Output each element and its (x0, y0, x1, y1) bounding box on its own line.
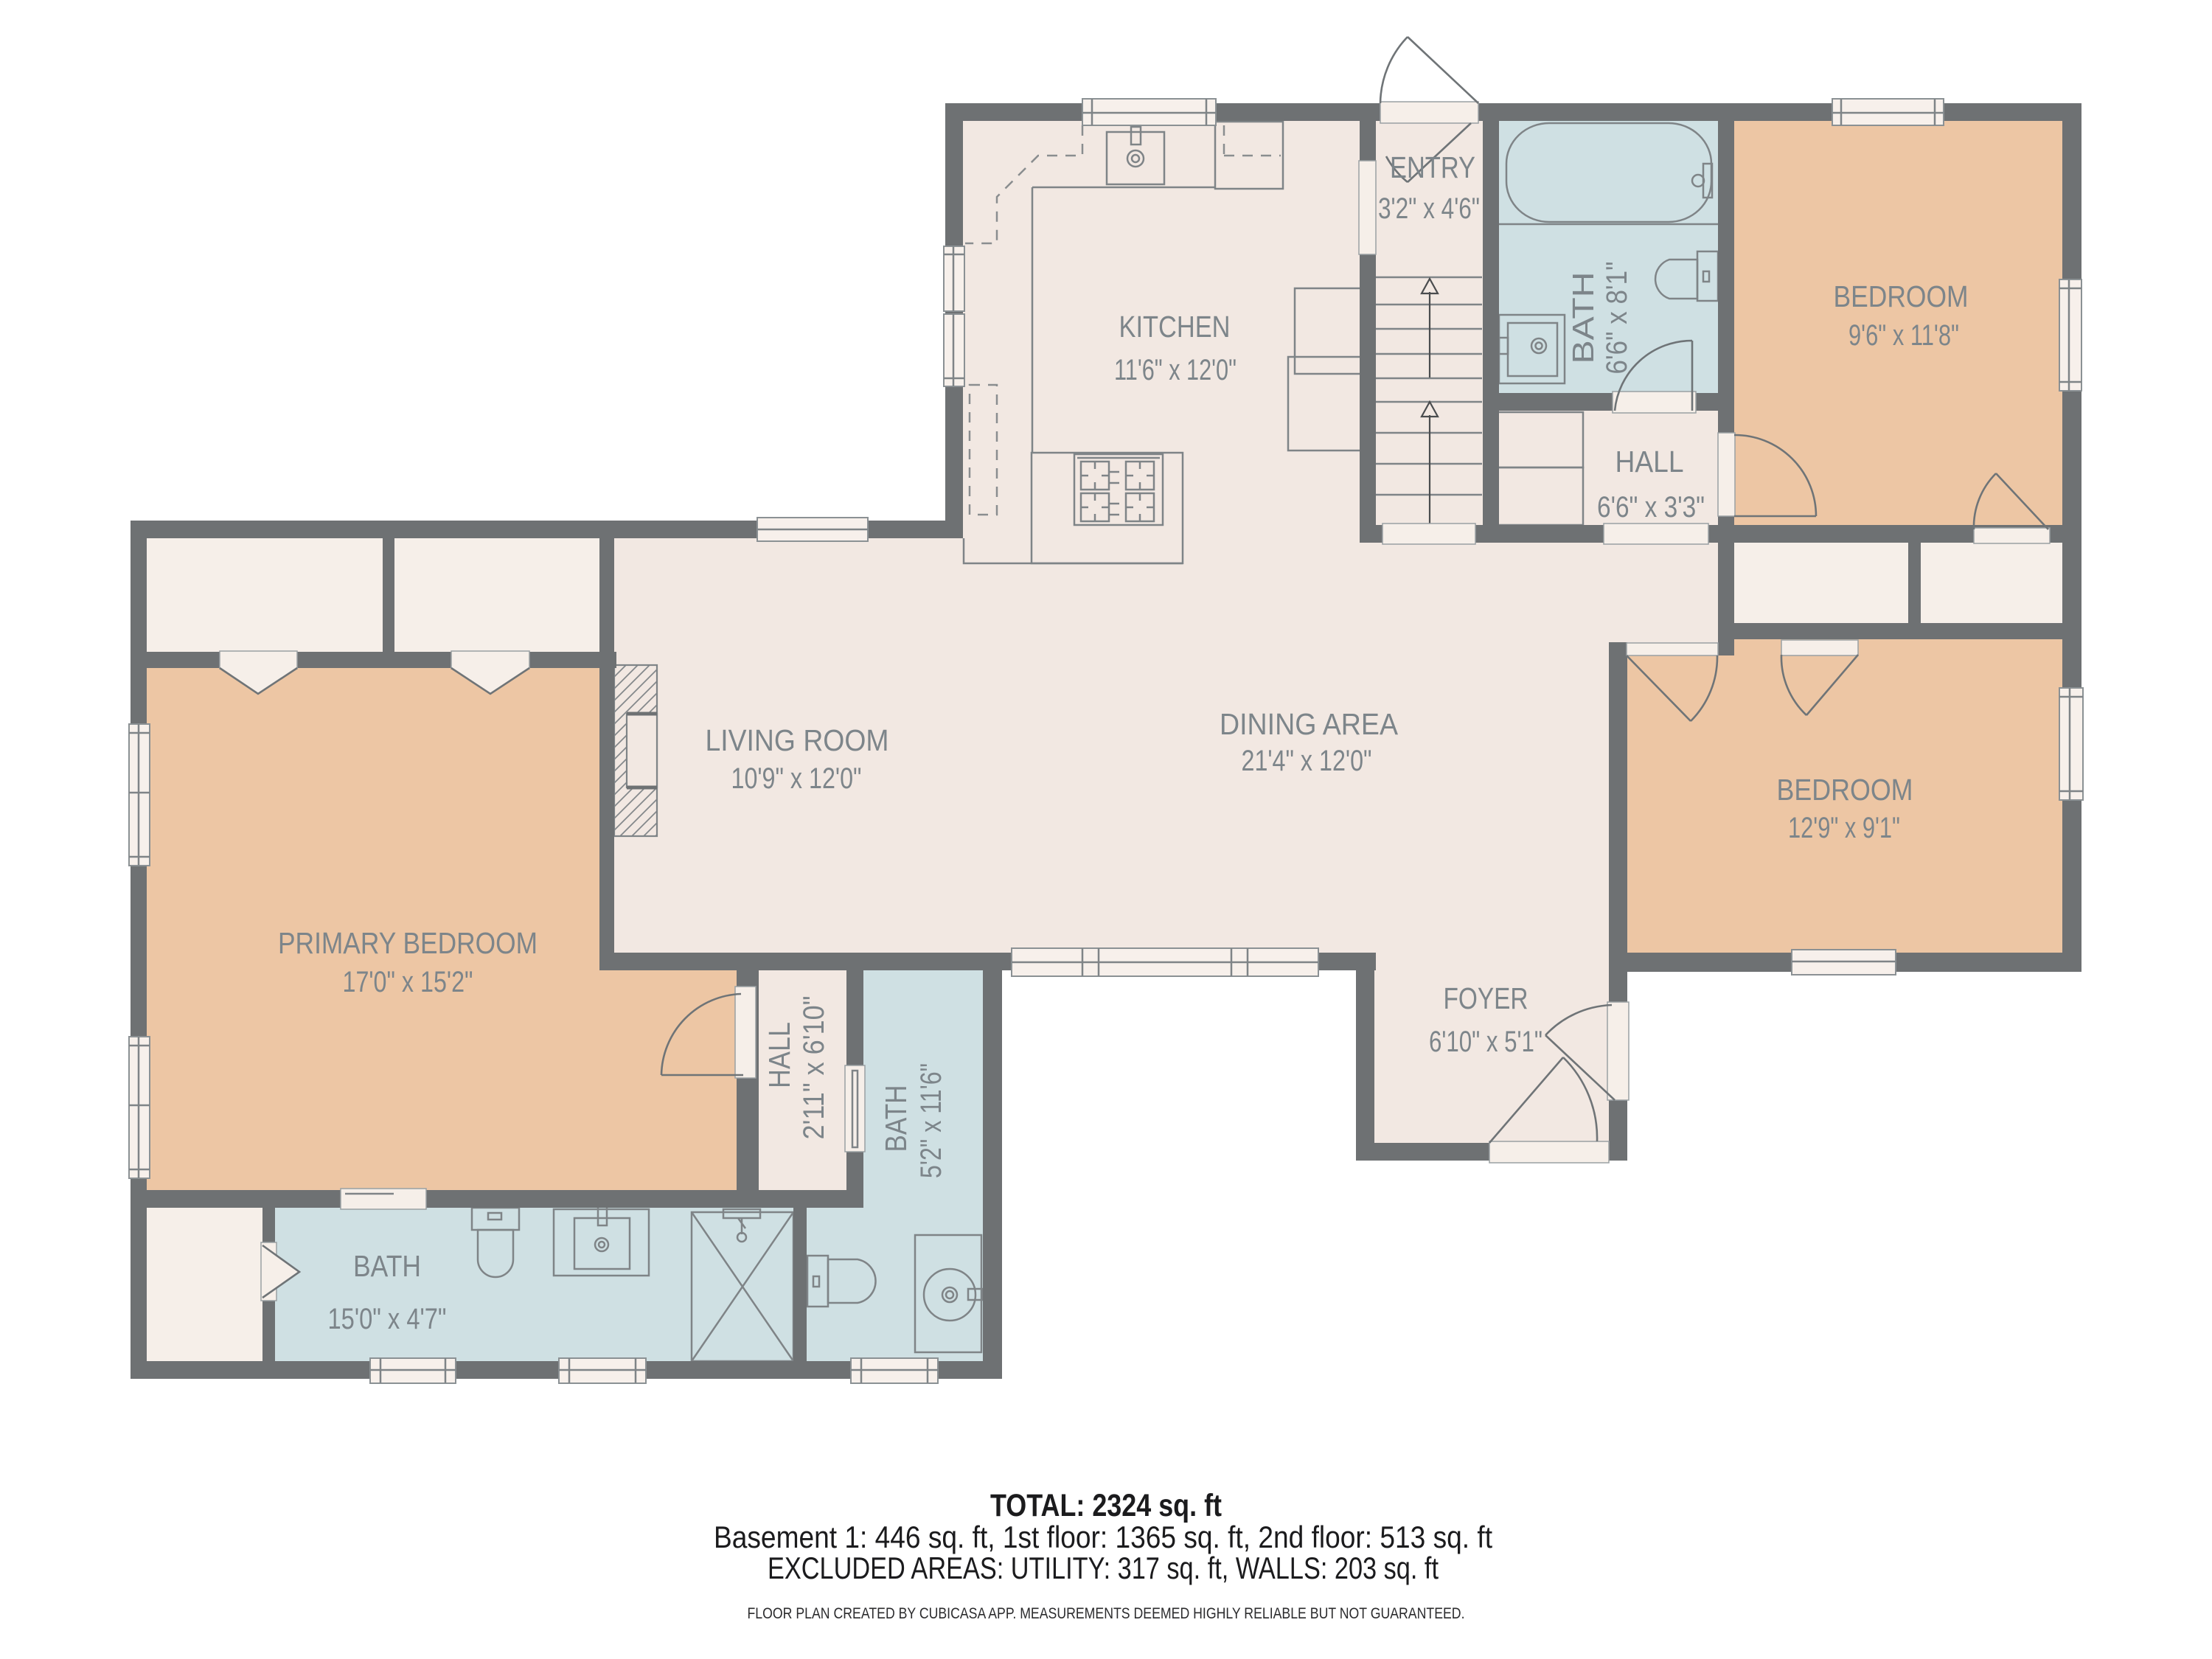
svg-text:5'2" x 11'6": 5'2" x 11'6" (915, 1063, 947, 1178)
svg-text:BATH: BATH (353, 1249, 421, 1283)
svg-text:BEDROOM: BEDROOM (1834, 279, 1969, 313)
svg-text:BEDROOM: BEDROOM (1777, 773, 1913, 807)
svg-text:EXCLUDED AREAS: UTILITY: 317 s: EXCLUDED AREAS: UTILITY: 317 sq. ft, WAL… (768, 1551, 1439, 1585)
svg-text:6'6" x 3'3": 6'6" x 3'3" (1597, 491, 1705, 524)
svg-text:Basement 1: 446 sq. ft, 1st fl: Basement 1: 446 sq. ft, 1st floor: 1365 … (714, 1520, 1492, 1554)
svg-text:PRIMARY BEDROOM: PRIMARY BEDROOM (278, 926, 538, 960)
svg-text:3'2" x 4'6": 3'2" x 4'6" (1378, 192, 1480, 225)
svg-text:HALL: HALL (762, 1022, 796, 1088)
svg-text:ENTRY: ENTRY (1390, 150, 1475, 184)
svg-text:BATH: BATH (1566, 272, 1600, 364)
svg-text:KITCHEN: KITCHEN (1119, 310, 1231, 344)
svg-text:FLOOR PLAN CREATED BY CUBICASA: FLOOR PLAN CREATED BY CUBICASA APP. MEAS… (748, 1605, 1465, 1622)
svg-text:6'6" x 8'1": 6'6" x 8'1" (1601, 262, 1633, 375)
svg-text:11'6" x 12'0": 11'6" x 12'0" (1114, 354, 1237, 386)
svg-text:FOYER: FOYER (1444, 981, 1528, 1015)
svg-text:TOTAL: 2324 sq. ft: TOTAL: 2324 sq. ft (990, 1488, 1222, 1523)
svg-text:9'6" x 11'8": 9'6" x 11'8" (1848, 319, 1959, 352)
svg-text:17'0" x 15'2": 17'0" x 15'2" (343, 966, 473, 998)
svg-text:6'10" x 5'1": 6'10" x 5'1" (1429, 1026, 1543, 1058)
svg-text:10'9" x 12'0": 10'9" x 12'0" (731, 762, 862, 795)
svg-text:BATH: BATH (879, 1085, 913, 1152)
svg-text:HALL: HALL (1615, 445, 1684, 479)
svg-text:2'11" x 6'10": 2'11" x 6'10" (798, 996, 830, 1140)
svg-text:21'4" x 12'0": 21'4" x 12'0" (1242, 745, 1372, 777)
svg-text:12'9" x 9'1": 12'9" x 9'1" (1788, 812, 1900, 844)
svg-text:DINING AREA: DINING AREA (1220, 707, 1399, 741)
svg-text:LIVING ROOM: LIVING ROOM (706, 723, 889, 757)
svg-text:15'0" x 4'7": 15'0" x 4'7" (328, 1303, 447, 1335)
